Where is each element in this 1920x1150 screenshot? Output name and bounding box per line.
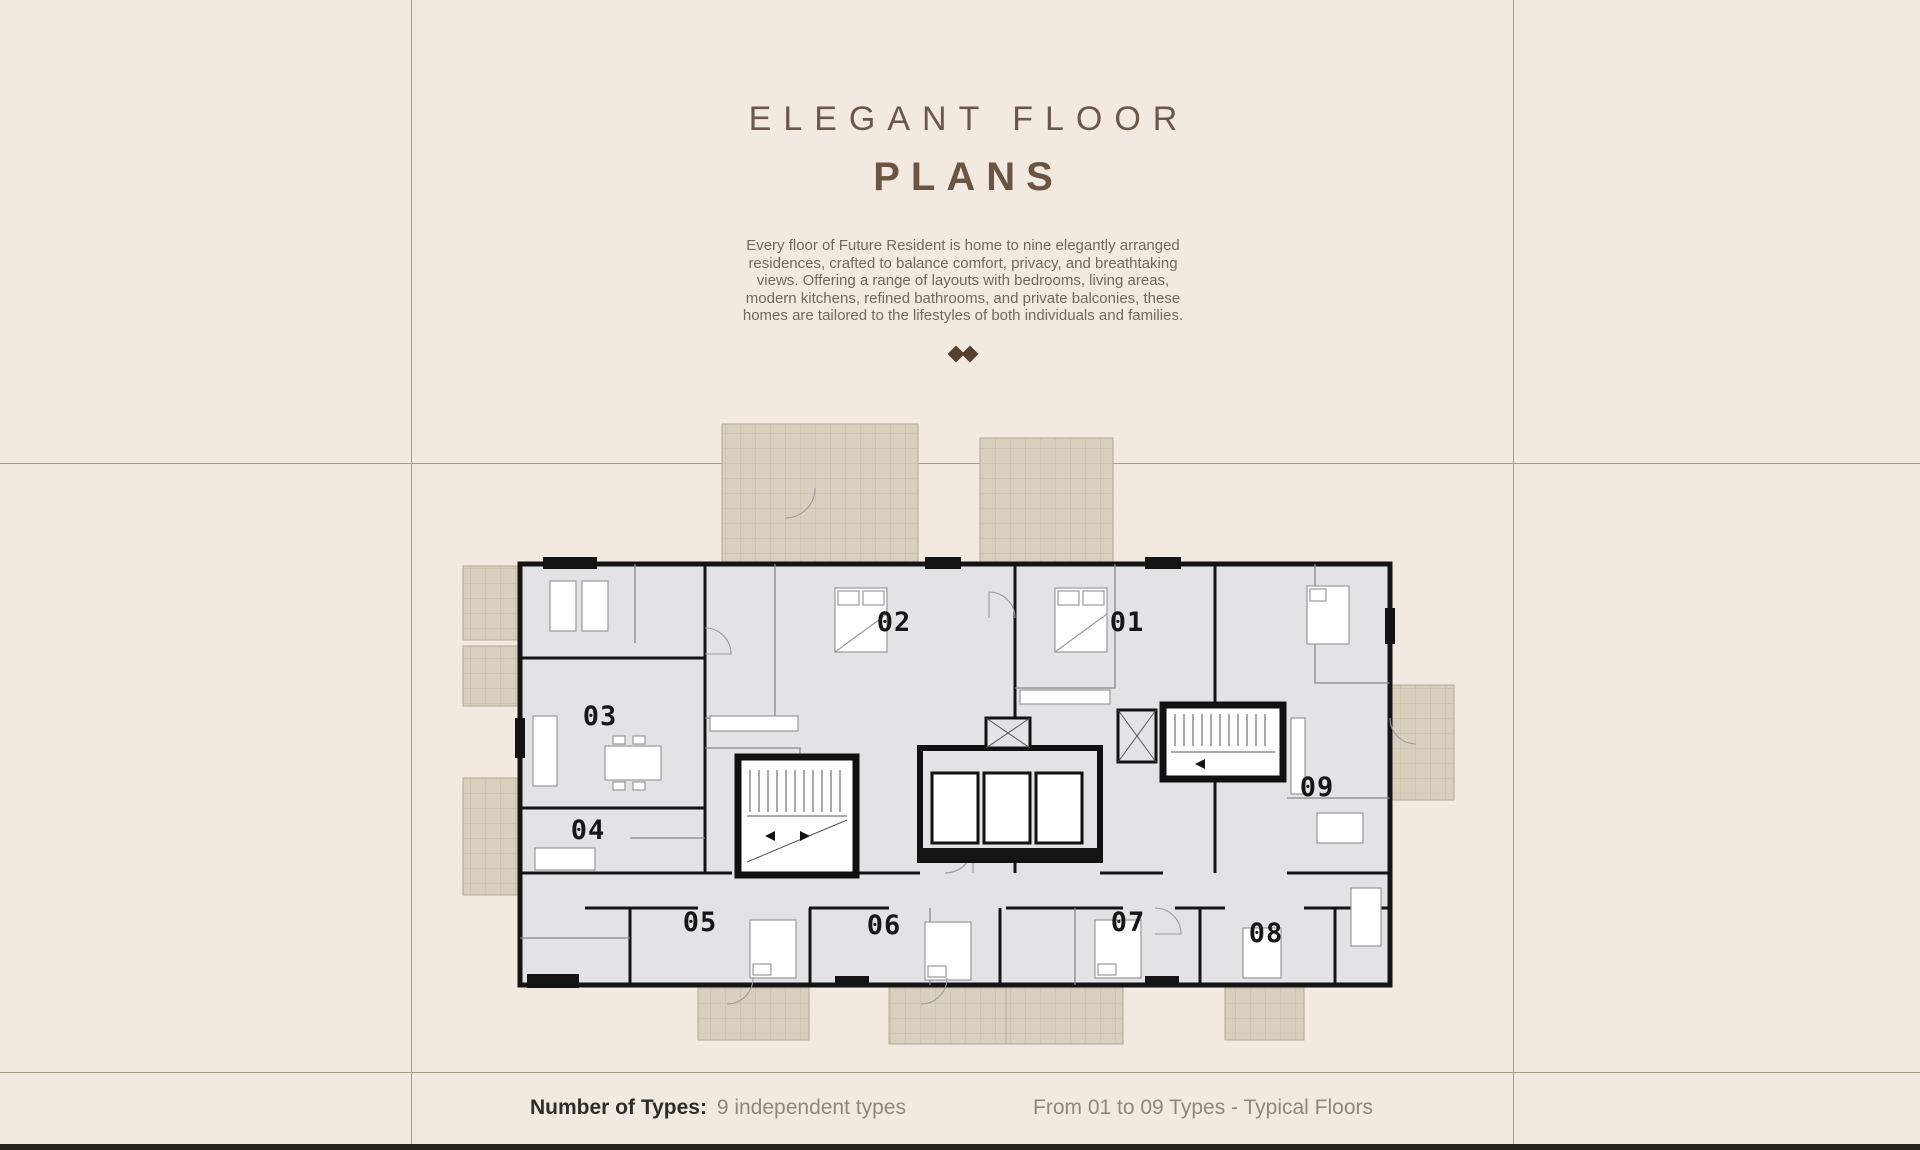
page-title: ELEGANT FLOOR PLANS bbox=[412, 100, 1514, 200]
dining-table bbox=[1317, 813, 1363, 843]
intro-line: modern kitchens, refined bathrooms, and … bbox=[412, 290, 1514, 308]
title-line-1: ELEGANT FLOOR bbox=[412, 100, 1514, 139]
unit-label-08: 08 bbox=[1249, 918, 1284, 949]
intro-line: residences, crafted to balance comfort, … bbox=[412, 255, 1514, 273]
types-count: Number of Types: 9 independent types bbox=[530, 1096, 906, 1120]
sofa bbox=[535, 848, 595, 870]
intro-line: Every floor of Future Resident is home t… bbox=[412, 237, 1514, 255]
unit-label-09: 09 bbox=[1300, 772, 1335, 803]
kitchen-counter bbox=[1020, 690, 1110, 704]
brochure-page: ELEGANT FLOOR PLANS Every floor of Futur… bbox=[0, 0, 1920, 1150]
intro-section: ELEGANT FLOOR PLANS Every floor of Futur… bbox=[412, 0, 1514, 365]
shaft-x-box bbox=[986, 718, 1030, 748]
types-value: 9 independent types bbox=[717, 1096, 906, 1119]
footer-bar bbox=[0, 1144, 1920, 1150]
bed bbox=[750, 920, 796, 978]
kitchen-counter bbox=[710, 716, 798, 731]
stair-core-left bbox=[738, 757, 856, 875]
unit-label-03: 03 bbox=[583, 701, 618, 732]
unit-label-07: 07 bbox=[1111, 907, 1146, 938]
unit-label-04: 04 bbox=[571, 815, 606, 846]
unit-label-06: 06 bbox=[867, 910, 902, 941]
intro-paragraph: Every floor of Future Resident is home t… bbox=[412, 237, 1514, 325]
bed bbox=[1307, 586, 1349, 644]
shaft-x-box bbox=[1118, 710, 1156, 762]
double-diamond-icon bbox=[412, 347, 1514, 365]
floor-plan-diagram: 010203040506070809 bbox=[455, 418, 1460, 1046]
unit-label-02: 02 bbox=[877, 607, 912, 638]
unit-label-01: 01 bbox=[1110, 607, 1145, 638]
types-label: Number of Types: bbox=[530, 1096, 707, 1119]
title-line-2: PLANS bbox=[412, 155, 1514, 200]
bed bbox=[925, 922, 971, 980]
grid-line-horizontal-lower bbox=[0, 1072, 1920, 1073]
intro-line: homes are tailored to the lifestyles of … bbox=[412, 307, 1514, 325]
sofa bbox=[533, 716, 557, 786]
floors-range: From 01 to 09 Types - Typical Floors bbox=[1033, 1096, 1373, 1120]
unit-label-05: 05 bbox=[683, 907, 718, 938]
intro-line: views. Offering a range of layouts with … bbox=[412, 272, 1514, 290]
bed bbox=[1055, 588, 1107, 652]
sofa bbox=[1351, 888, 1381, 946]
